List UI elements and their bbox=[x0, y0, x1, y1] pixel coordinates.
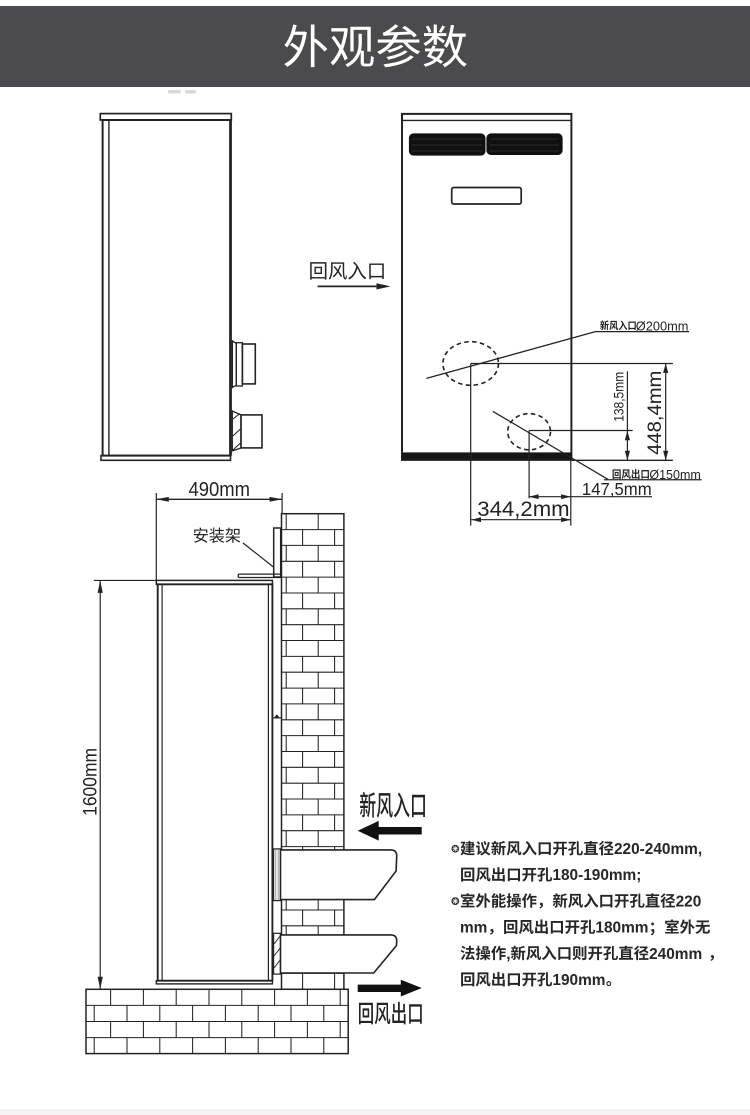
svg-text:448,4mm: 448,4mm bbox=[645, 371, 666, 455]
svg-text:,: , bbox=[506, 946, 510, 963]
svg-text:220-240mm,: 220-240mm, bbox=[614, 841, 702, 858]
svg-text:220: 220 bbox=[676, 893, 702, 910]
svg-text:180-190mm;: 180-190mm; bbox=[552, 867, 641, 884]
svg-text:344,2mm: 344,2mm bbox=[477, 498, 569, 521]
svg-text:490mm: 490mm bbox=[189, 479, 251, 501]
svg-text:180mm: 180mm bbox=[595, 920, 648, 937]
svg-text:147,5mm: 147,5mm bbox=[582, 479, 652, 499]
svg-text:mm: mm bbox=[460, 920, 487, 937]
svg-text:240mm: 240mm bbox=[649, 946, 702, 963]
svg-text:190mm: 190mm bbox=[552, 972, 605, 989]
svg-text:138,5mm: 138,5mm bbox=[611, 372, 626, 422]
svg-text:1600mm: 1600mm bbox=[80, 748, 102, 816]
